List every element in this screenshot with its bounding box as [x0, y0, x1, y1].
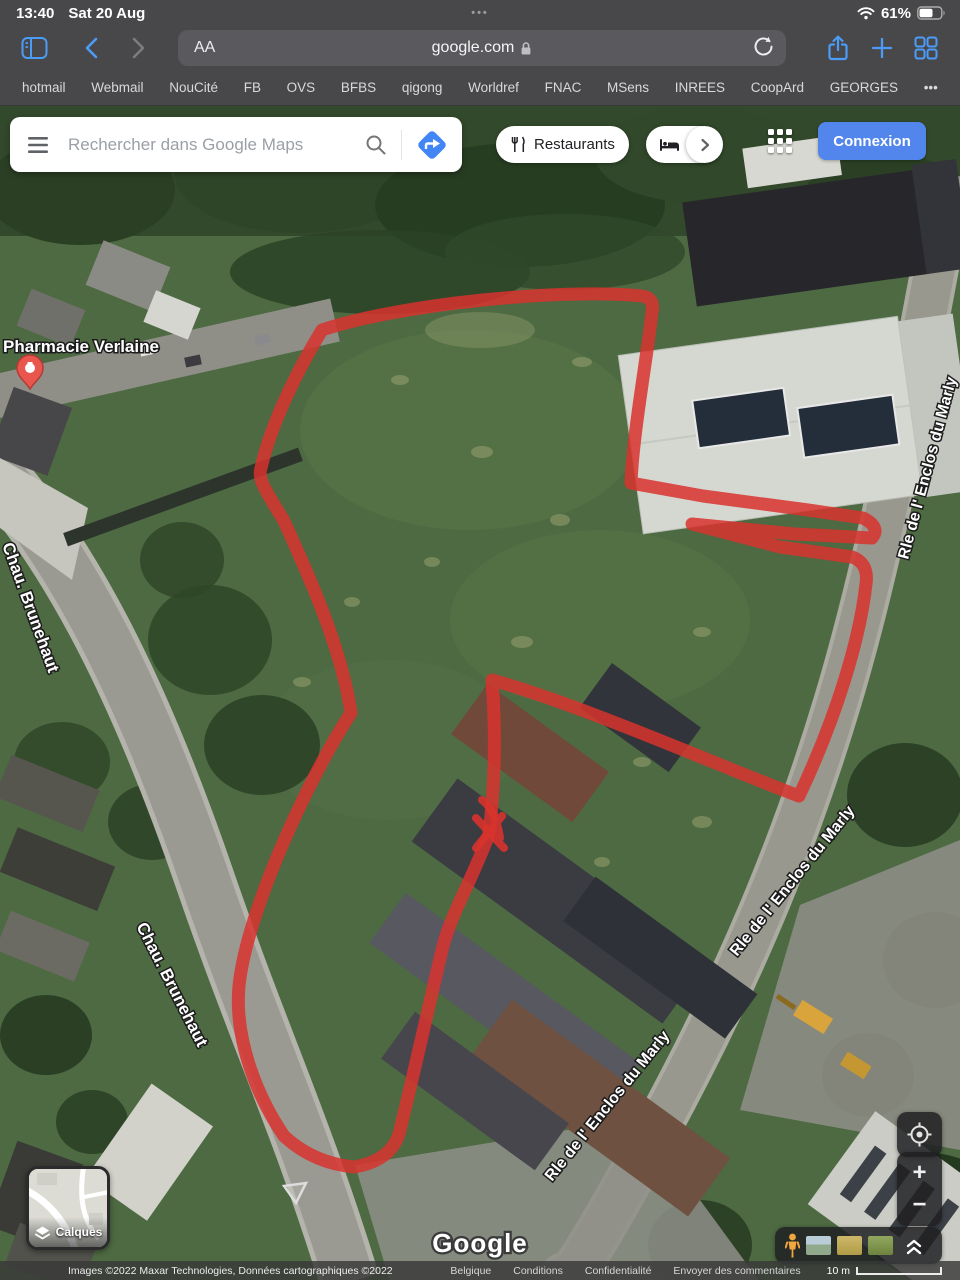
divider	[401, 130, 402, 160]
sidebar-button[interactable]	[14, 31, 54, 65]
chevron-right-icon	[697, 136, 713, 154]
my-location-button[interactable]	[897, 1112, 942, 1157]
layers-button[interactable]: Calques	[26, 1166, 110, 1250]
reader-button[interactable]: AA	[194, 39, 215, 57]
new-tab-button[interactable]	[862, 31, 902, 65]
directions-icon[interactable]	[414, 127, 450, 163]
link-privacy[interactable]: Confidentialité	[585, 1265, 652, 1277]
my-location-icon	[906, 1121, 933, 1148]
imagery-bar	[775, 1227, 942, 1264]
attribution-bar: Images ©2022 Maxar Technologies, Données…	[0, 1261, 960, 1280]
link-terms[interactable]: Conditions	[513, 1265, 563, 1277]
bookmark-inrees[interactable]: INREES	[675, 80, 725, 95]
zoom-in-button[interactable]: +	[912, 1161, 926, 1185]
bookmark-georges[interactable]: GEORGES	[830, 80, 898, 95]
chip-restaurants-label: Restaurants	[534, 136, 615, 153]
bookmark-qigong[interactable]: qigong	[402, 80, 443, 95]
bookmarks-bar: hotmail Webmail NouCité FB OVS BFBS qigo…	[0, 70, 960, 106]
status-bar: 13:40 Sat 20 Aug ••• 61%	[0, 0, 960, 26]
forward-button[interactable]	[118, 31, 158, 65]
maps-search-card: Rechercher dans Google Maps	[10, 117, 462, 172]
map-scale: 10 m	[827, 1265, 942, 1277]
expand-chevrons-icon[interactable]	[903, 1235, 925, 1257]
poi-label: Pharmacie Verlaine	[3, 337, 159, 356]
bookmark-webmail[interactable]: Webmail	[91, 80, 143, 95]
map-canvas[interactable]: Chau. Brunehaut Chau. Brunehaut Rle de l…	[0, 106, 960, 1280]
zoom-out-button[interactable]: −	[912, 1193, 926, 1217]
bookmark-fb[interactable]: FB	[244, 80, 261, 95]
scale-label: 10 m	[827, 1265, 850, 1277]
menu-icon[interactable]	[28, 135, 50, 155]
address-bar[interactable]: AA google.com	[178, 30, 786, 66]
chips-scroll-next-button[interactable]	[686, 126, 723, 163]
bookmark-msens[interactable]: MSens	[607, 80, 649, 95]
link-feedback[interactable]: Envoyer des commentaires	[673, 1265, 800, 1277]
imagery-thumbnail-2[interactable]	[837, 1236, 862, 1255]
imagery-credits: Images ©2022 Maxar Technologies, Données…	[68, 1265, 393, 1277]
search-input[interactable]: Rechercher dans Google Maps	[68, 135, 365, 155]
back-button[interactable]	[72, 31, 112, 65]
link-country[interactable]: Belgique	[450, 1265, 491, 1277]
bookmark-hotmail[interactable]: hotmail	[22, 80, 66, 95]
imagery-thumbnail-3[interactable]	[868, 1236, 893, 1255]
tabs-button[interactable]	[906, 31, 946, 65]
bookmark-worldref[interactable]: Worldref	[468, 80, 519, 95]
imagery-thumbnail-1[interactable]	[806, 1236, 831, 1255]
search-icon[interactable]	[365, 134, 387, 156]
restaurant-icon	[510, 136, 526, 153]
layers-icon	[34, 1225, 51, 1240]
bookmark-coopard[interactable]: CoopArd	[751, 80, 804, 95]
share-button[interactable]	[818, 31, 858, 65]
signin-button[interactable]: Connexion	[818, 122, 926, 160]
url-text: google.com	[432, 39, 515, 57]
reload-button[interactable]	[752, 35, 774, 62]
bookmark-noucite[interactable]: NouCité	[169, 80, 218, 95]
bookmark-fnac[interactable]: FNAC	[545, 80, 582, 95]
google-apps-grid-icon[interactable]	[768, 129, 794, 155]
bookmark-ovs[interactable]: OVS	[287, 80, 316, 95]
pegman-icon[interactable]	[785, 1233, 800, 1259]
chip-restaurants[interactable]: Restaurants	[496, 126, 629, 163]
scale-bar	[856, 1267, 942, 1275]
bookmark-bfbs[interactable]: BFBS	[341, 80, 376, 95]
layers-label: Calques	[56, 1225, 103, 1239]
multitask-dots: •••	[0, 7, 960, 19]
zoom-control: + −	[897, 1152, 942, 1226]
lock-icon	[520, 41, 532, 56]
bookmarks-overflow[interactable]: •••	[924, 80, 938, 95]
google-logo: Google	[432, 1228, 528, 1258]
hotel-icon	[660, 138, 679, 152]
browser-toolbar: AA google.com	[0, 26, 960, 70]
